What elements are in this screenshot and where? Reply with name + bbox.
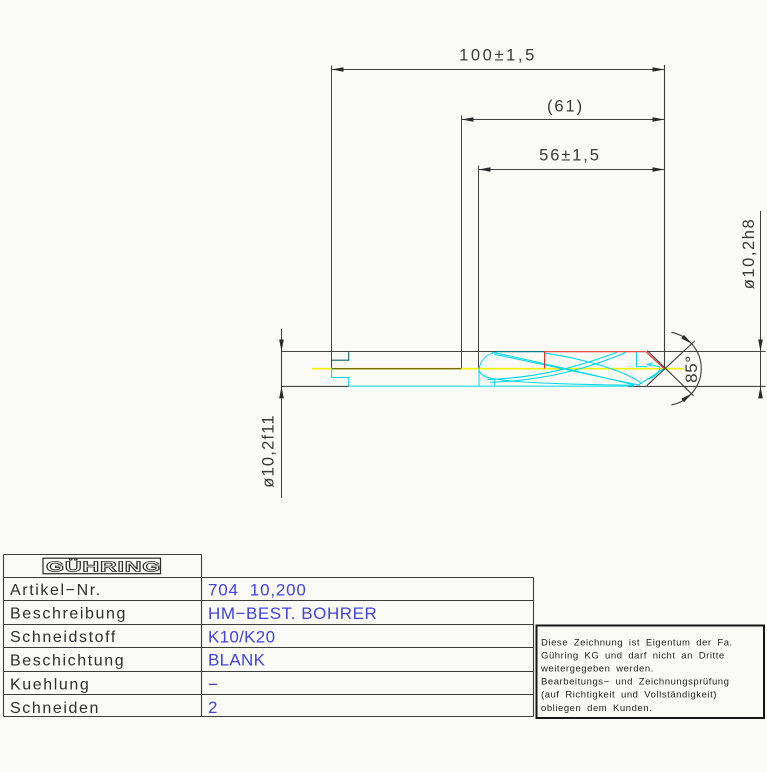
svg-text:−: − (208, 675, 218, 694)
svg-text:(auf Richtigkeit und Vollständ: (auf Richtigkeit und Vollständigkeit) (541, 690, 717, 701)
svg-text:100±1,5: 100±1,5 (459, 47, 537, 65)
svg-text:Diese Zeichnung ist Eigentum d: Diese Zeichnung ist Eigentum der Fa. (541, 637, 733, 648)
svg-text:obliegen dem Kunden.: obliegen dem Kunden. (541, 703, 652, 714)
svg-text:Beschreibung: Beschreibung (10, 606, 127, 623)
svg-text:HM−BEST. BOHRER: HM−BEST. BOHRER (208, 604, 377, 623)
svg-text:ø10,2f11: ø10,2f11 (260, 414, 278, 488)
svg-text:Schneidstoff: Schneidstoff (10, 629, 117, 646)
svg-text:Schneiden: Schneiden (10, 700, 100, 717)
svg-text:85°: 85° (682, 355, 701, 383)
svg-text:K10/K20: K10/K20 (208, 627, 275, 646)
svg-text:Beschichtung: Beschichtung (10, 653, 125, 670)
svg-text:weitergegeben werden.: weitergegeben werden. (540, 664, 654, 675)
svg-text:704 10,200: 704 10,200 (208, 580, 307, 599)
svg-text:Gühring KG und darf nicht an D: Gühring KG und darf nicht an Dritte (541, 650, 725, 661)
svg-text:ø10,2h8: ø10,2h8 (740, 218, 758, 289)
svg-text:56±1,5: 56±1,5 (539, 147, 601, 165)
svg-text:BLANK: BLANK (208, 651, 266, 670)
svg-text:Artikel−Nr.: Artikel−Nr. (10, 582, 102, 599)
svg-text:Bearbeitungs− und Zeichnungspr: Bearbeitungs− und Zeichnungsprüfung (541, 677, 729, 688)
svg-text:(61): (61) (547, 97, 584, 115)
svg-text:GÜHRING: GÜHRING (46, 557, 161, 575)
svg-text:2: 2 (208, 698, 218, 717)
svg-text:Kuehlung: Kuehlung (10, 677, 90, 694)
